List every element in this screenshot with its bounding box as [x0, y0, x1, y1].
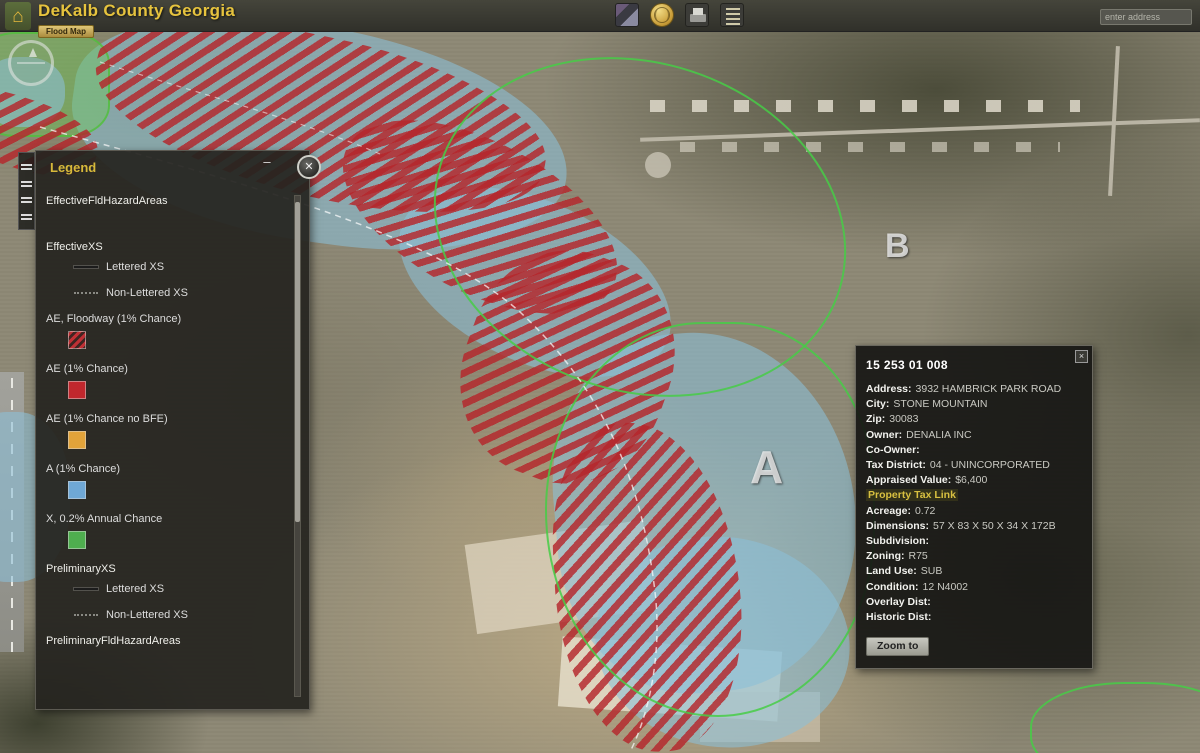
legend-header[interactable]: Legend – ✕	[36, 151, 309, 185]
legend-minimize-button[interactable]: –	[259, 155, 275, 171]
zone-ae-swatch	[68, 381, 86, 399]
parcel-info-popup: × 15 253 01 008 Address:3932 HAMBRICK PA…	[855, 345, 1093, 669]
header-toolbar	[615, 3, 744, 27]
app-window: B A ⌂ DeKalb County Georgia Flood Map	[0, 0, 1200, 753]
layer-list-icon[interactable]	[720, 3, 744, 27]
property-tax-link: Property Tax Link	[866, 488, 1082, 503]
field-address: Address:3932 HAMBRICK PARK ROAD	[866, 382, 1082, 397]
legend-item: Lettered XS	[74, 261, 286, 273]
line-symbol	[74, 588, 98, 590]
print-icon[interactable]	[685, 3, 709, 27]
field-tax-district: Tax District:04 - UNINCORPORATED	[866, 458, 1082, 473]
zoom-to-button[interactable]: Zoom to	[866, 637, 929, 656]
legend-scrollbar[interactable]	[294, 195, 301, 697]
zone-x-swatch	[68, 531, 86, 549]
legend-layer: PreliminaryXS	[46, 563, 286, 575]
field-dimensions: Dimensions:57 X 83 X 50 X 34 X 172B	[866, 519, 1082, 534]
field-zoning: Zoning:R75	[866, 549, 1082, 564]
close-icon: ✕	[304, 161, 313, 173]
legend-layer: EffectiveFldHazardAreas	[46, 195, 286, 207]
menu-lines-icon[interactable]	[21, 212, 32, 220]
menu-lines-icon[interactable]	[21, 179, 32, 187]
legend-layer: EffectiveXS	[46, 241, 286, 253]
field-city: City:STONE MOUNTAIN	[866, 397, 1082, 412]
line-symbol	[74, 266, 98, 268]
menu-lines-icon[interactable]	[21, 195, 32, 203]
field-appraised-value: Appraised Value:$6,400	[866, 473, 1082, 488]
legend-layer: PreliminaryFldHazardAreas	[46, 635, 286, 647]
close-icon: ×	[1079, 351, 1084, 361]
search-input[interactable]	[1100, 9, 1192, 25]
dashed-line-symbol	[74, 292, 98, 294]
globe-icon[interactable]	[650, 3, 674, 27]
legend-body: EffectiveFldHazardAreas EffectiveXS Lett…	[46, 195, 286, 699]
house-icon: ⌂	[12, 7, 23, 26]
legend-item: AE (1% Chance no BFE)	[46, 413, 286, 425]
header-bar: ⌂ DeKalb County Georgia Flood Map	[0, 0, 1200, 32]
page-title: DeKalb County Georgia	[38, 1, 235, 21]
field-land-use: Land Use:SUB	[866, 564, 1082, 579]
field-owner: Owner:DENALIA INC	[866, 428, 1082, 443]
legend-item: X, 0.2% Annual Chance	[46, 513, 286, 525]
compass-control[interactable]	[8, 40, 54, 86]
legend-item: A (1% Chance)	[46, 463, 286, 475]
field-co-owner: Co-Owner:	[866, 443, 1082, 458]
popup-close-button[interactable]: ×	[1075, 350, 1088, 363]
county-logo: ⌂	[5, 2, 31, 30]
field-subdivision: Subdivision:	[866, 534, 1082, 549]
dashed-line-symbol	[74, 614, 98, 616]
map-tools-strip	[18, 152, 35, 230]
legend-item: Non-Lettered XS	[74, 609, 286, 621]
parcel-id: 15 253 01 008	[866, 358, 1082, 372]
field-condition: Condition:12 N4002	[866, 580, 1082, 595]
legend-item: AE (1% Chance)	[46, 363, 286, 375]
legend-panel: Legend – ✕ EffectiveFldHazardAreas Effec…	[35, 150, 310, 710]
legend-title: Legend	[50, 160, 96, 175]
field-overlay-dist: Overlay Dist:	[866, 595, 1082, 610]
zone-ae-nobfe-swatch	[68, 431, 86, 449]
legend-item: AE, Floodway (1% Chance)	[46, 313, 286, 325]
legend-item: Lettered XS	[74, 583, 286, 595]
legend-item: Non-Lettered XS	[74, 287, 286, 299]
legend-close-button[interactable]: ✕	[297, 155, 321, 179]
legend-scrollbar-thumb[interactable]	[295, 202, 300, 522]
floodway-swatch	[68, 331, 86, 349]
flood-map-button[interactable]: Flood Map	[38, 25, 94, 38]
basemap-icon[interactable]	[615, 3, 639, 27]
field-zip: Zip:30083	[866, 412, 1082, 427]
field-historic-dist: Historic Dist:	[866, 610, 1082, 625]
zone-a-swatch	[68, 481, 86, 499]
menu-lines-icon[interactable]	[21, 162, 32, 170]
field-acreage: Acreage:0.72	[866, 504, 1082, 519]
